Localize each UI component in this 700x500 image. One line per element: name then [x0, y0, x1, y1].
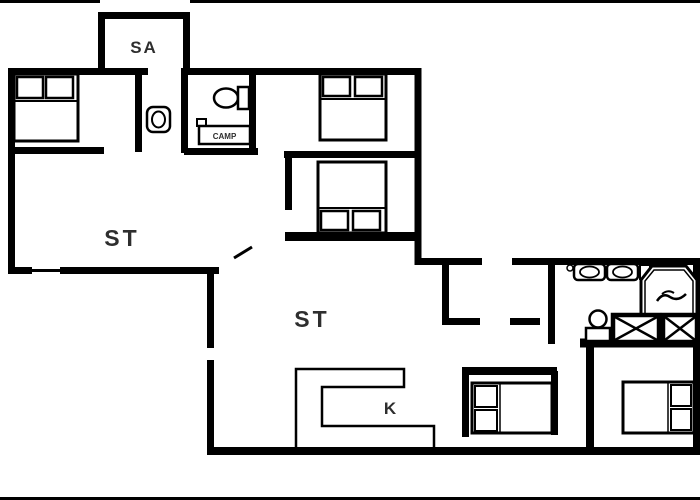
room-label-sauna: SA — [130, 38, 158, 57]
vanity-label: CAMP — [213, 132, 237, 141]
toilet-bowl — [214, 89, 238, 108]
sanitary-fixtures: CAMP — [147, 87, 697, 342]
door-swing-icon — [234, 247, 252, 258]
toilet-icon — [147, 107, 170, 132]
basin-bowl — [580, 267, 599, 278]
floor-plan-page: CAMP — [0, 0, 700, 500]
toilet-bowl — [590, 311, 607, 328]
double-bed-icon — [320, 74, 386, 140]
shower-cabinet-icon — [613, 315, 659, 342]
toilet-tank — [586, 328, 610, 341]
pillow — [671, 409, 691, 430]
pillow — [475, 386, 497, 407]
tap — [567, 265, 573, 271]
room-label-living-lower: ST — [294, 306, 329, 332]
toilet-seat — [152, 112, 165, 128]
basin-bowl — [613, 267, 632, 278]
counter-outline — [296, 369, 434, 449]
pillow — [355, 77, 382, 96]
pillow — [46, 77, 73, 98]
toilet-icon — [214, 87, 249, 109]
kitchen-counter-icon — [296, 369, 434, 449]
top-border-right — [190, 0, 700, 3]
toilet-tank — [238, 87, 249, 109]
pillow — [323, 77, 350, 96]
top-border-left — [0, 0, 100, 3]
vanity-cabinet: CAMP — [197, 119, 250, 144]
pillow — [671, 385, 691, 406]
floor-plan-drawing: CAMP — [0, 0, 700, 500]
toilet-icon — [586, 311, 610, 342]
pillow — [353, 211, 380, 230]
room-label-kitchen: K — [384, 399, 397, 418]
double-bed-icon — [14, 74, 78, 141]
double-bed-icon — [472, 383, 552, 433]
pillow — [475, 410, 497, 431]
double-bed-icon — [623, 382, 694, 433]
washbasin-icon — [567, 264, 605, 280]
room-label-living-upper: ST — [104, 225, 139, 251]
shower-cabinet-icon — [663, 315, 697, 342]
pillow — [321, 211, 348, 230]
double-bed-icon — [318, 162, 386, 233]
pillow — [17, 77, 43, 98]
